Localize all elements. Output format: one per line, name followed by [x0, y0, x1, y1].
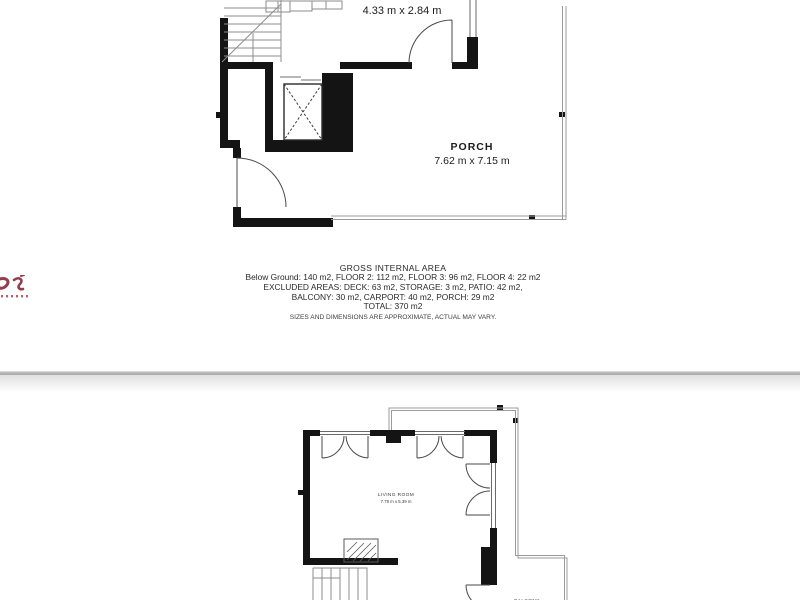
area-summary-total: TOTAL: 370 m2: [0, 302, 786, 312]
floorplan-page: 4.33 m x 2.84 m PORCH 7.62 m x 7.15 m GR…: [0, 0, 800, 600]
upper-walls: [216, 18, 565, 227]
logo-subtext-dots: [1, 295, 28, 297]
logo-glyph-icon: [14, 278, 23, 289]
area-summary: GROSS INTERNAL AREA Below Ground: 140 m2…: [0, 263, 786, 322]
living-room-label: LIVING ROOM: [378, 492, 414, 498]
living-room-dimensions: 7.79 m x 5.39 m: [381, 499, 412, 504]
lower-floorplan: LIVING ROOM 7.79 m x 5.39 m BALCONY: [0, 380, 800, 600]
staircase-lower: [313, 568, 367, 600]
area-summary-disclaimer: SIZES AND DIMENSIONS ARE APPROXIMATE, AC…: [0, 313, 786, 322]
upper-dimension-label: 4.33 m x 2.84 m: [363, 5, 442, 17]
agency-logo-partial: [0, 275, 40, 303]
cabinets-upper: [266, 1, 342, 12]
lower-doors: [322, 436, 490, 600]
upper-window: [470, 0, 476, 37]
elevator: [280, 77, 322, 140]
elevator-door: [280, 77, 321, 80]
lower-windows: [320, 432, 496, 529]
staircase-upper: [222, 0, 281, 62]
porch-dimensions: 7.62 m x 7.15 m: [434, 155, 510, 167]
porch-label: PORCH: [451, 141, 494, 153]
porch-boundary: [331, 6, 566, 220]
logo-accent-icon: [21, 275, 24, 276]
logo-glyph-icon: [0, 279, 8, 289]
balcony-boundary: [389, 408, 567, 600]
